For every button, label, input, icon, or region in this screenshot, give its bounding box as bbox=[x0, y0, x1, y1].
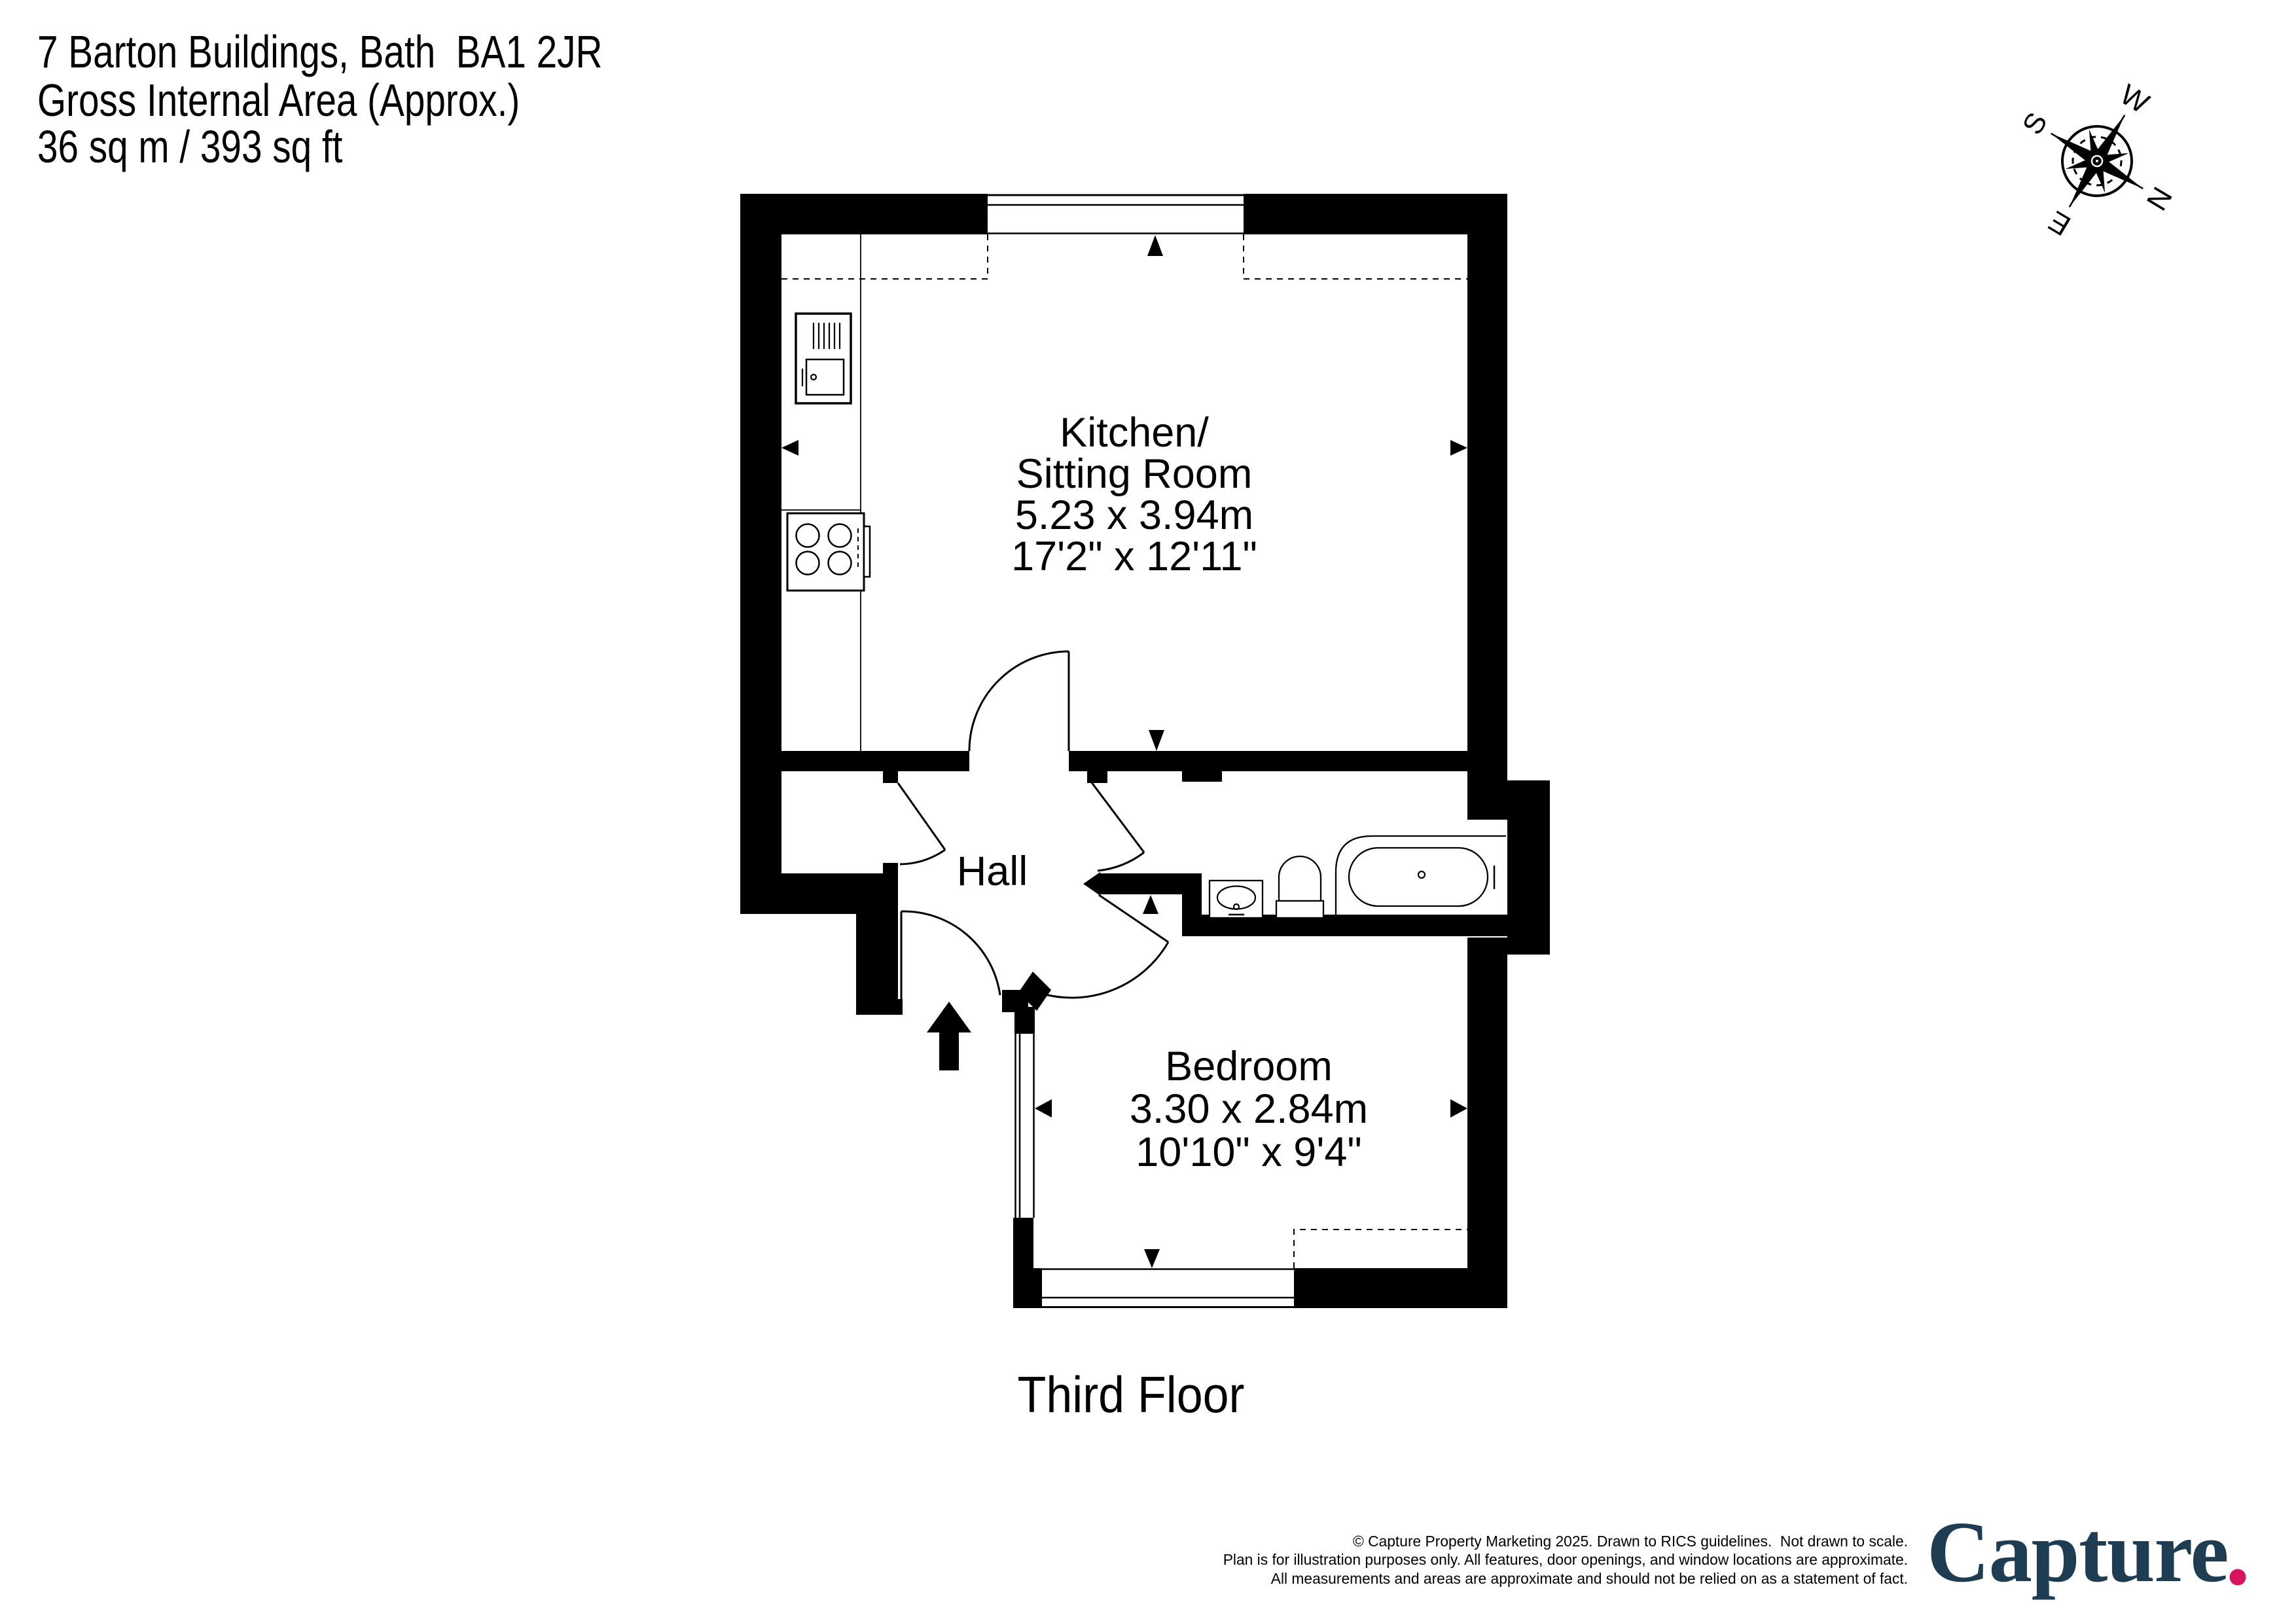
svg-text:Capture: Capture bbox=[1927, 1503, 2228, 1600]
svg-text:36 sq m / 393 sq ft: 36 sq m / 393 sq ft bbox=[37, 121, 343, 172]
svg-text:Hall: Hall bbox=[957, 848, 1028, 894]
svg-text:Plan is for illustration purpo: Plan is for illustration purposes only. … bbox=[1223, 1551, 1908, 1568]
svg-text:All measurements and areas are: All measurements and areas are approxima… bbox=[1271, 1570, 1908, 1587]
svg-text:Bedroom: Bedroom bbox=[1165, 1044, 1333, 1089]
svg-text:3.30 x 2.84m: 3.30 x 2.84m bbox=[1130, 1086, 1368, 1132]
svg-text:Sitting Room: Sitting Room bbox=[1016, 451, 1253, 497]
svg-text:7 Barton Buildings, Bath BA1: 7 Barton Buildings, Bath BA1 2JR bbox=[37, 26, 602, 77]
svg-text:10'10" x 9'4": 10'10" x 9'4" bbox=[1136, 1129, 1362, 1175]
svg-text:5.23 x 3.94m: 5.23 x 3.94m bbox=[1015, 492, 1253, 538]
svg-text:17'2" x 12'11": 17'2" x 12'11" bbox=[1011, 534, 1257, 579]
svg-text:Kitchen/: Kitchen/ bbox=[1060, 410, 1209, 456]
svg-text:Third Floor: Third Floor bbox=[1018, 1366, 1245, 1423]
svg-text:© Capture Property Marketing 2: © Capture Property Marketing 2025. Drawn… bbox=[1353, 1533, 1908, 1550]
svg-text:Gross Internal Area (Approx.): Gross Internal Area (Approx.) bbox=[37, 75, 520, 126]
